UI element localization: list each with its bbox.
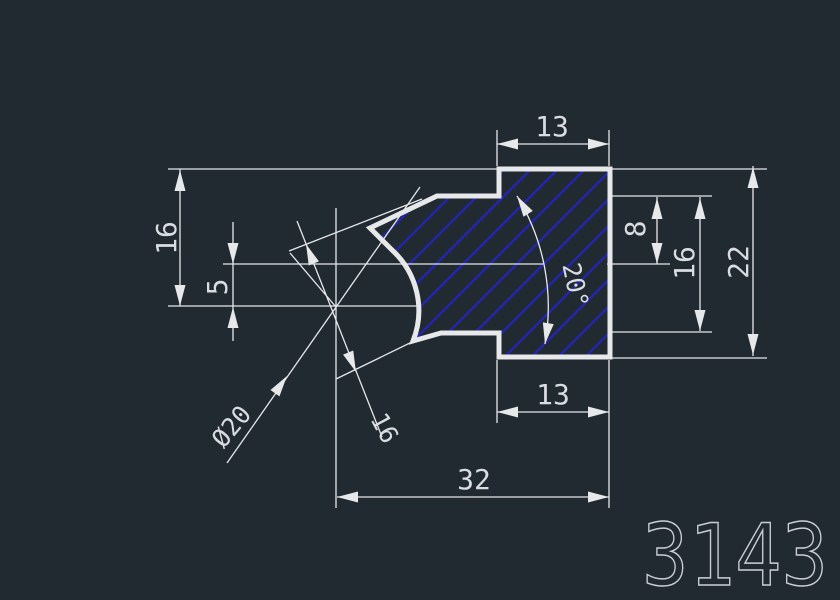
dim-arrow: [652, 243, 663, 264]
dim-offset-left: 5: [201, 279, 234, 296]
dim-arrow: [228, 243, 239, 264]
dim-height-left: 16: [150, 221, 183, 255]
dim-arrow: [175, 170, 186, 191]
dim-arrow: [588, 407, 609, 418]
dim-arrow: [497, 407, 518, 418]
dim-arrow: [748, 167, 759, 188]
dim-bottom-width: 13: [536, 378, 570, 411]
dim-arrow: [652, 198, 663, 219]
dim-diameter: Ø20: [206, 400, 257, 453]
dim-arrow: [497, 139, 518, 150]
dim-arrow: [588, 139, 609, 150]
cad-drawing-canvas: 13 13 32 16 5 8 16 22 Ø20 16 20° 3143: [0, 0, 840, 600]
dim-top-width: 13: [535, 110, 569, 143]
dim-arrow: [175, 285, 186, 306]
dim-arrow: [588, 492, 609, 503]
dim-inner-height-right: 16: [668, 246, 701, 280]
dim-total-width: 32: [457, 463, 491, 496]
cad-drawing-viewport[interactable]: 13 13 32 16 5 8 16 22 Ø20 16 20° 3143: [0, 0, 840, 600]
dim-arrow: [695, 310, 706, 331]
dim-arrow: [228, 307, 239, 328]
dim-total-height: 22: [722, 245, 755, 279]
part-number: 3143: [642, 506, 828, 600]
dim-step-height-right: 8: [619, 221, 652, 238]
dim-diagonal-length: 16: [365, 408, 405, 448]
dim-arrow: [337, 492, 358, 503]
dim-arrow: [748, 334, 759, 355]
dim-arrow: [695, 198, 706, 219]
